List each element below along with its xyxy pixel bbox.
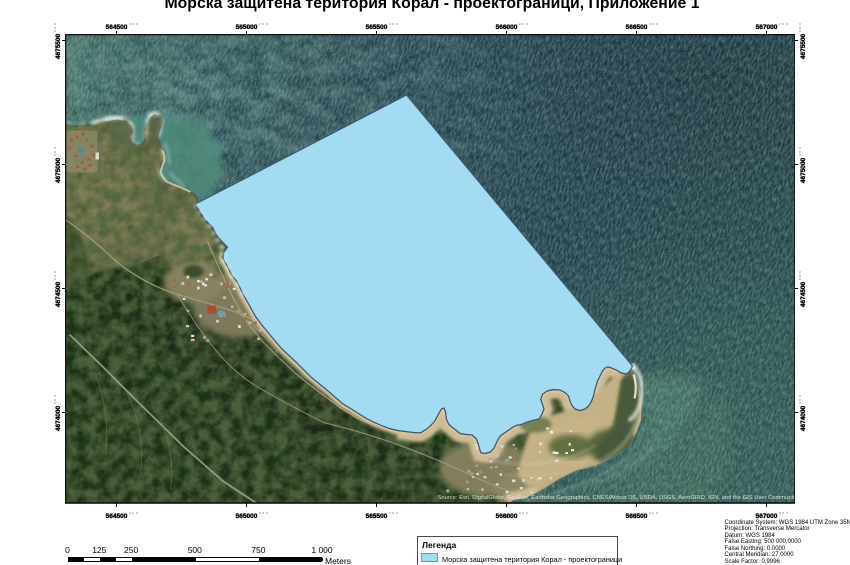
svg-text:Source: Esri, DigitalGlobe, Ge: Source: Esri, DigitalGlobe, GeoEye, Eart… (437, 495, 795, 501)
